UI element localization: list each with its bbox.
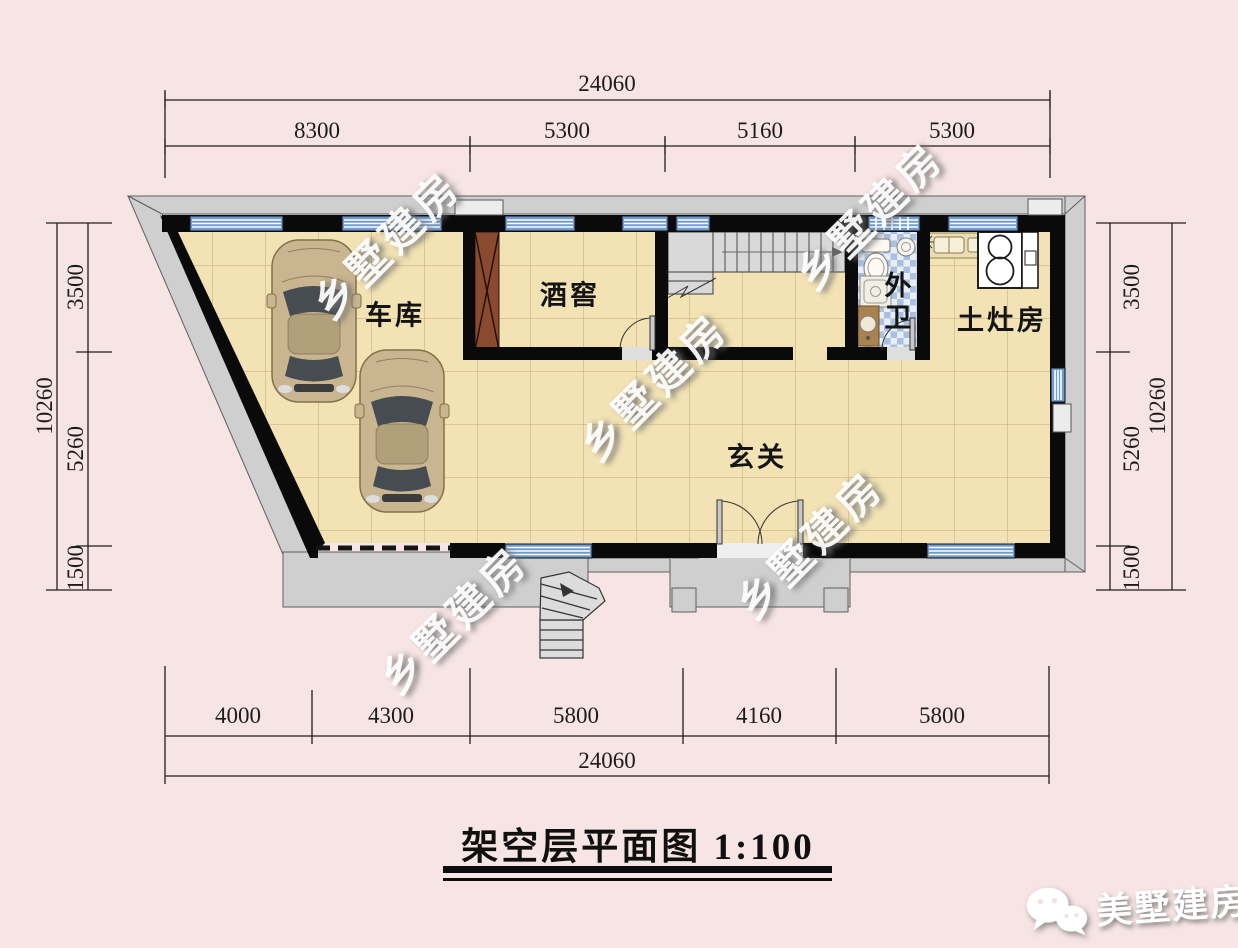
dim-bottom-seg: 5800 [919, 703, 965, 729]
wechat-icon [1022, 882, 1092, 940]
dim-right-seg: 5260 [1119, 426, 1145, 472]
exterior-curved-stair [540, 572, 605, 658]
room-label-garage: 车库 [365, 294, 425, 333]
dim-bottom-seg: 4300 [368, 703, 414, 729]
dim-left-total: 10260 [32, 377, 58, 435]
room-label-wine-cellar: 酒窖 [540, 274, 600, 313]
room-label-outer-bath: 外卫 [877, 271, 916, 335]
dim-left-seg: 5260 [63, 426, 89, 472]
dim-top-seg: 5300 [544, 118, 590, 144]
wood-stove [978, 232, 1038, 288]
floor-plan-page: 24060 8300 5300 5160 5300 4000 4300 5800… [0, 0, 1238, 948]
dim-right-total: 10260 [1145, 377, 1171, 435]
dim-bottom-seg: 4000 [215, 703, 261, 729]
dim-right-seg: 3500 [1119, 264, 1145, 310]
room-label-foyer: 玄关 [727, 436, 787, 475]
dim-bottom-seg: 5800 [553, 703, 599, 729]
kitchen-sink-counter [924, 233, 984, 258]
dim-bottom-total: 24060 [578, 748, 636, 774]
dim-top-seg: 5160 [737, 118, 783, 144]
entry-door-leaf [717, 500, 722, 544]
title-underline-thick [443, 866, 832, 873]
porch-column [672, 588, 696, 612]
dim-right-seg: 1500 [1119, 545, 1145, 591]
floor-plan-drawing [0, 0, 1238, 948]
porch-column [824, 588, 848, 612]
dim-top-seg: 8300 [294, 118, 340, 144]
room-label-stove-room: 土灶房 [957, 299, 1047, 338]
dim-left-seg: 3500 [63, 264, 89, 310]
dim-bottom-seg: 4160 [736, 703, 782, 729]
car-2 [355, 350, 449, 512]
dim-left-seg: 1500 [63, 545, 89, 591]
drawing-title: 架空层平面图 1:100 [461, 816, 815, 870]
brand-name: 美墅建房 [1094, 872, 1238, 934]
corner-basin [897, 238, 915, 256]
wood-chute [475, 232, 499, 350]
dim-top-seg: 5300 [929, 118, 975, 144]
title-underline-thin [443, 878, 832, 881]
dim-top-total: 24060 [578, 71, 636, 97]
